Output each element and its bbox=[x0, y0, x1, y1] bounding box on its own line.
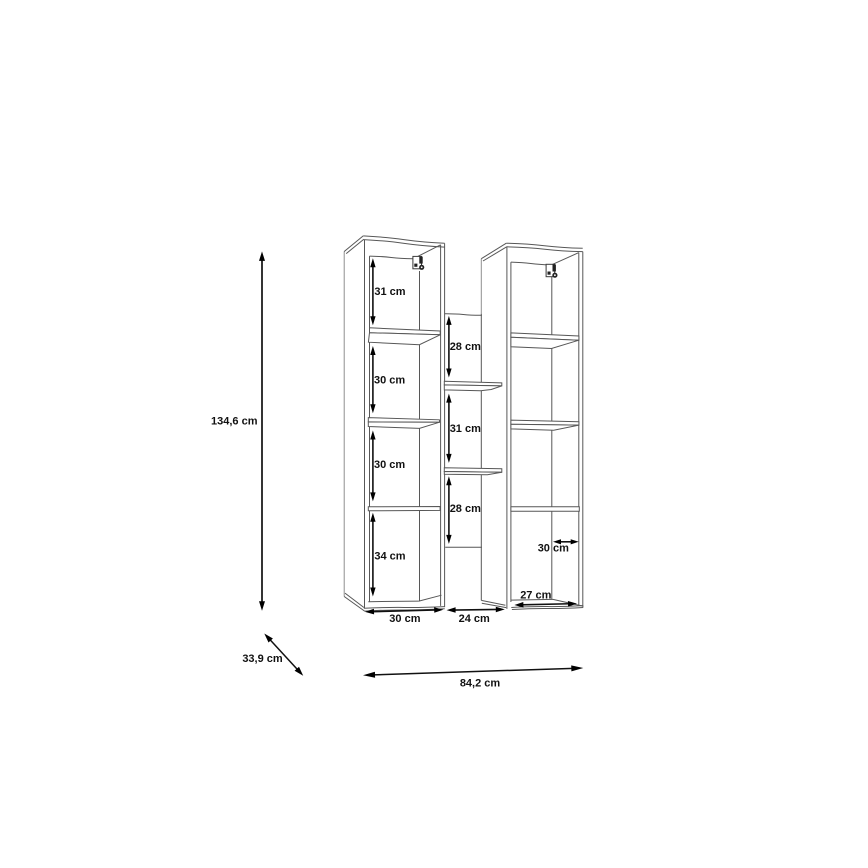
svg-text:31 cm: 31 cm bbox=[450, 423, 481, 435]
svg-text:34 cm: 34 cm bbox=[374, 551, 405, 563]
svg-text:28 cm: 28 cm bbox=[450, 503, 481, 515]
svg-text:31 cm: 31 cm bbox=[374, 286, 405, 298]
svg-text:84,2 cm: 84,2 cm bbox=[460, 677, 501, 689]
svg-text:30 cm: 30 cm bbox=[374, 374, 405, 386]
svg-text:28 cm: 28 cm bbox=[450, 341, 481, 353]
svg-text:33,9 cm: 33,9 cm bbox=[242, 653, 283, 665]
svg-text:134,6 cm: 134,6 cm bbox=[211, 416, 258, 428]
svg-text:27 cm: 27 cm bbox=[520, 590, 551, 602]
svg-text:30 cm: 30 cm bbox=[374, 459, 405, 471]
svg-text:30 cm: 30 cm bbox=[538, 542, 569, 554]
svg-text:30 cm: 30 cm bbox=[389, 613, 420, 625]
svg-text:24 cm: 24 cm bbox=[459, 613, 490, 625]
